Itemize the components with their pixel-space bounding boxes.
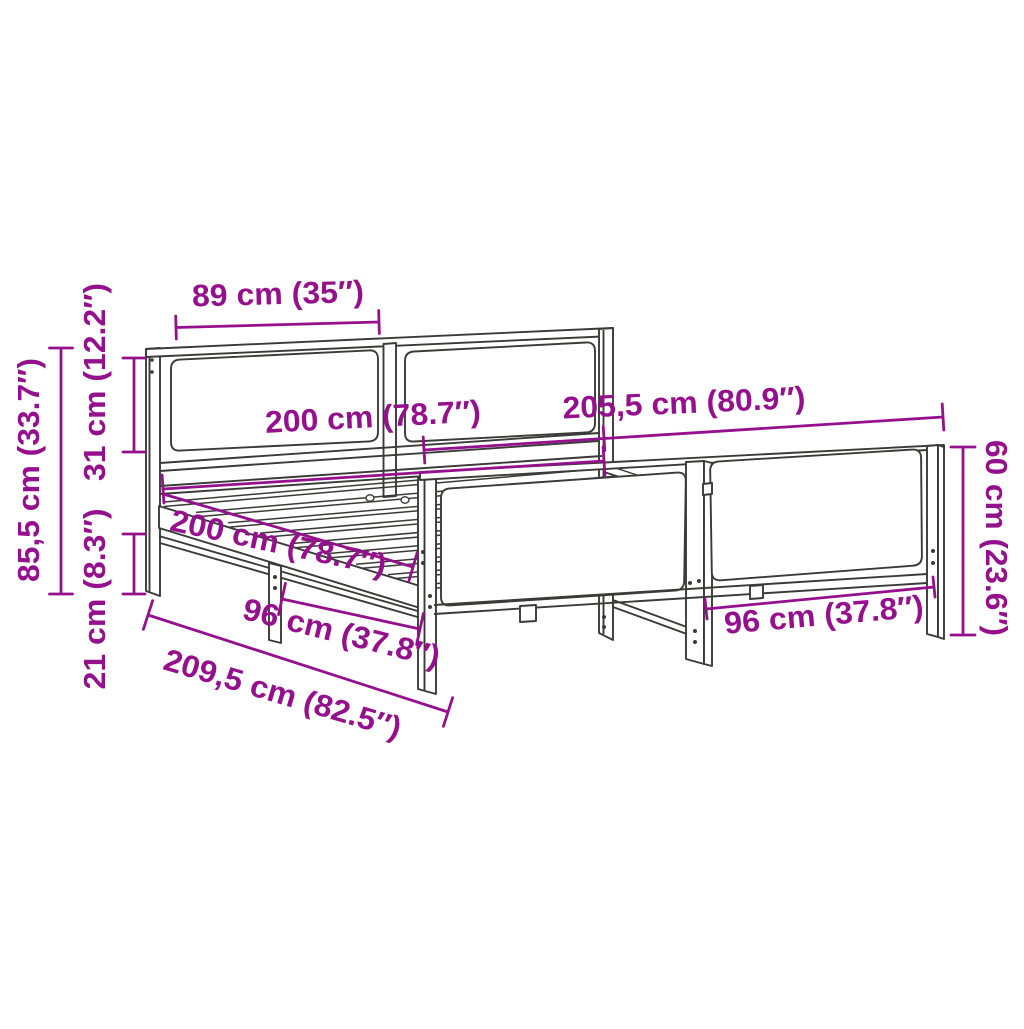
- svg-text:85,5 cm (33.7″): 85,5 cm (33.7″): [11, 358, 46, 582]
- svg-text:89 cm (35″): 89 cm (35″): [192, 274, 365, 313]
- svg-text:31 cm (12.2″): 31 cm (12.2″): [77, 283, 112, 481]
- svg-text:21 cm (8.3″): 21 cm (8.3″): [77, 509, 112, 690]
- svg-text:60 cm (23.6″): 60 cm (23.6″): [979, 440, 1014, 636]
